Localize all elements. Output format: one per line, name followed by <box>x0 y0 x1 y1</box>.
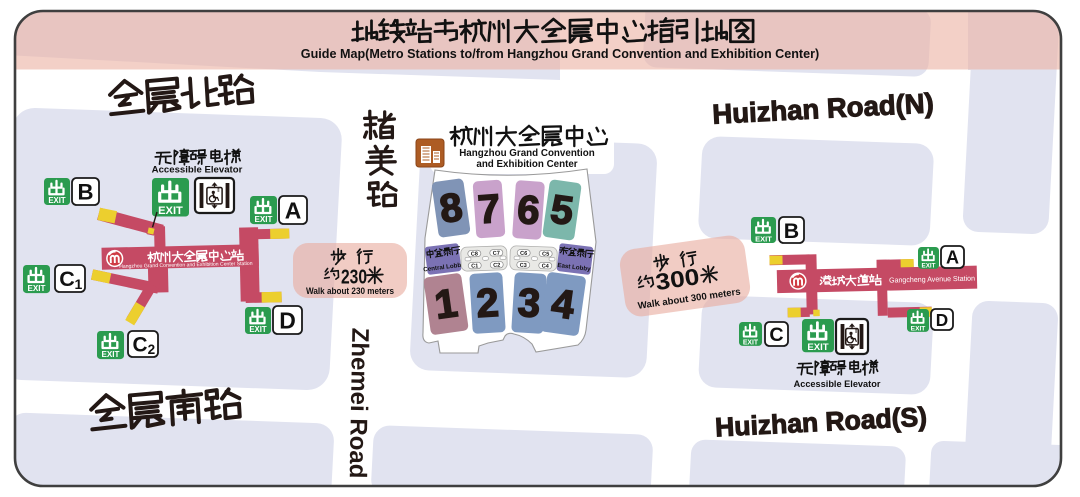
svg-text:B: B <box>78 180 94 205</box>
svg-text:C4: C4 <box>542 263 550 269</box>
svg-text:2: 2 <box>148 342 156 357</box>
svg-text:2: 2 <box>475 281 500 326</box>
svg-text:D: D <box>279 307 296 333</box>
svg-text:A: A <box>285 197 302 223</box>
svg-text:EXIT: EXIT <box>911 325 926 332</box>
svg-text:Accessible Elevator: Accessible Elevator <box>794 379 881 389</box>
svg-text:EXIT: EXIT <box>755 234 772 243</box>
svg-text:A: A <box>946 248 959 268</box>
svg-text:and Exhibition Center: and Exhibition Center <box>476 159 577 170</box>
svg-text:3: 3 <box>517 281 542 326</box>
svg-text:EXIT: EXIT <box>158 205 183 217</box>
svg-text:Guide Map(Metro Stations to/fr: Guide Map(Metro Stations to/from Hangzho… <box>301 47 819 61</box>
svg-text:B: B <box>784 219 799 243</box>
svg-text:C: C <box>132 333 147 356</box>
svg-text:Walk about 230 meters: Walk about 230 meters <box>306 286 394 296</box>
svg-text:6: 6 <box>516 188 541 233</box>
svg-text:EXIT: EXIT <box>48 196 66 205</box>
svg-text:C6: C6 <box>520 251 527 257</box>
svg-text:EXIT: EXIT <box>743 339 759 346</box>
svg-text:Hangzhou Grand Convention: Hangzhou Grand Convention <box>459 148 595 159</box>
svg-text:Zhemei Road: Zhemei Road <box>344 327 374 478</box>
svg-text:C: C <box>769 324 783 346</box>
svg-text:EXIT: EXIT <box>255 215 273 224</box>
svg-text:C1: C1 <box>471 263 478 269</box>
svg-text:C8: C8 <box>471 251 478 257</box>
svg-text:D: D <box>936 310 948 330</box>
svg-text:EXIT: EXIT <box>102 350 120 359</box>
svg-text:C3: C3 <box>520 263 527 269</box>
svg-text:Accessible Elevator: Accessible Elevator <box>152 165 243 176</box>
svg-text:C5: C5 <box>542 251 549 257</box>
svg-text:EXIT: EXIT <box>249 325 267 334</box>
svg-text:C2: C2 <box>493 263 500 269</box>
svg-text:1: 1 <box>74 276 82 292</box>
svg-text:EXIT: EXIT <box>922 262 936 269</box>
svg-text:C: C <box>59 266 75 291</box>
svg-text:EXIT: EXIT <box>28 284 46 293</box>
svg-text:EXIT: EXIT <box>807 342 828 353</box>
svg-text:7: 7 <box>476 187 501 232</box>
svg-text:C7: C7 <box>493 251 500 257</box>
